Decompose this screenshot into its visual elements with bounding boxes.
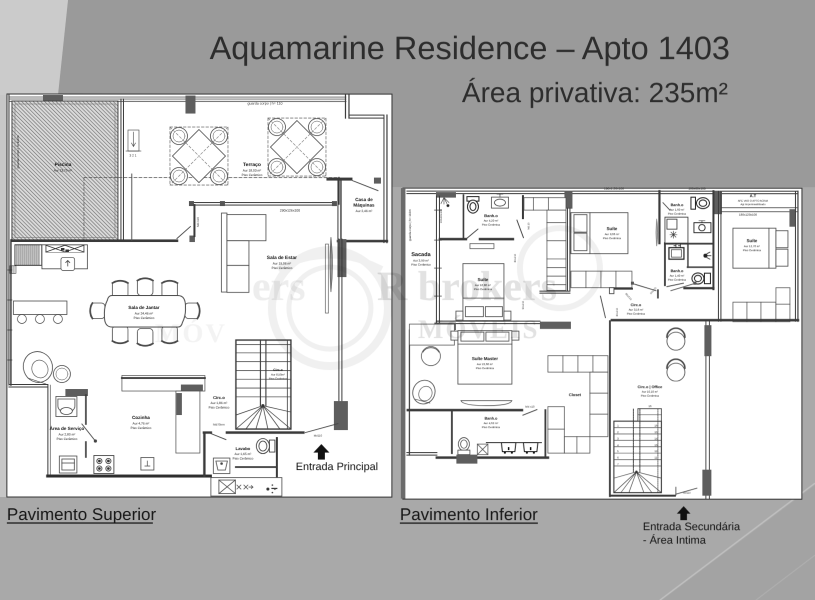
svg-text:Máquinas: Máquinas [353, 203, 375, 208]
svg-text:Piso Cerâmico: Piso Cerâmico [131, 426, 152, 430]
svg-text:Md.110: Md.110 [196, 217, 200, 227]
svg-text:12: 12 [654, 449, 658, 453]
svg-text:Piso Cerâmica: Piso Cerâmica [743, 248, 762, 252]
svg-text:Piso Cerâmica: Piso Cerâmica [603, 236, 622, 240]
svg-text:3 2 1: 3 2 1 [129, 154, 136, 158]
svg-text:16: 16 [648, 404, 652, 408]
svg-text:290x126x100: 290x126x100 [280, 209, 300, 213]
svg-text:14: 14 [654, 437, 658, 441]
svg-text:Suíte: Suíte [607, 226, 618, 231]
svg-text:Circ.o: Circ.o [273, 368, 283, 372]
svg-text:Piscina: Piscina [55, 162, 72, 168]
svg-text:Banh.o: Banh.o [484, 417, 498, 421]
svg-text:Aur 4,76 m²: Aur 4,76 m² [133, 422, 150, 426]
svg-text:ers: ers [252, 264, 306, 310]
svg-text:Pavimento Superior: Pavimento Superior [7, 505, 157, 524]
svg-text:Suíte: Suíte [747, 238, 758, 243]
svg-text:16: 16 [654, 424, 658, 428]
svg-text:180x120x100: 180x120x100 [739, 213, 757, 217]
svg-text:Circ.o: Circ.o [631, 303, 642, 307]
svg-text:R brokers: R brokers [377, 264, 557, 310]
svg-text:Aur 2,46 m²: Aur 2,46 m² [356, 209, 373, 213]
svg-text:- Área Intima: - Área Intima [643, 534, 707, 547]
svg-text:190x1.20x100: 190x1.20x100 [604, 187, 624, 191]
svg-text:MÓVEIS: MÓVEIS [418, 314, 540, 344]
svg-text:13: 13 [654, 443, 658, 447]
svg-text:Piso Cerâmico: Piso Cerâmico [233, 457, 254, 461]
svg-text:80x210: 80x210 [514, 253, 517, 262]
svg-text:Entrada Secundária: Entrada Secundária [643, 521, 741, 533]
svg-text:Piso Cerâmica: Piso Cerâmica [476, 366, 495, 370]
svg-text:Aur 24,46 m²: Aur 24,46 m² [135, 312, 153, 316]
svg-text:Aquamarine Residence – Apto 14: Aquamarine Residence – Apto 1403 [210, 30, 730, 66]
svg-text:Casa de: Casa de [355, 197, 373, 202]
svg-text:Piso Cerâmico: Piso Cerâmico [209, 406, 230, 410]
svg-text:Aur 13,70 m²: Aur 13,70 m² [54, 169, 72, 173]
svg-text:100x60x100: 100x60x100 [440, 208, 443, 223]
svg-text:Banh.o: Banh.o [484, 213, 498, 218]
svg-text:11: 11 [654, 456, 657, 460]
svg-text:Md.10: Md.10 [527, 222, 530, 230]
svg-text:Md110: Md110 [314, 434, 323, 438]
svg-text:Pavimento Inferior: Pavimento Inferior [400, 505, 538, 524]
svg-text:guarda corpo | h= 110m: guarda corpo | h= 110m [408, 209, 412, 241]
svg-text:Cozinha: Cozinha [132, 415, 150, 420]
svg-text:Piso Cerâmico: Piso Cerâmico [134, 316, 155, 320]
svg-text:A.T: A.T [750, 193, 757, 198]
svg-text:Circ.o | Office: Circ.o | Office [638, 385, 663, 389]
svg-text:Piso Cerâmica: Piso Cerâmica [641, 394, 660, 398]
svg-text:100x60x100: 100x60x100 [688, 187, 706, 191]
svg-text:Aur 18,03 m²: Aur 18,03 m² [243, 169, 261, 173]
svg-text:Aur 2,80 m²: Aur 2,80 m² [59, 433, 76, 437]
svg-text:Circ.o: Circ.o [213, 395, 225, 400]
svg-text:Piso Cerâmico: Piso Cerâmico [57, 437, 78, 441]
svg-text:Closet: Closet [569, 392, 582, 397]
svg-text:Lavabo: Lavabo [236, 446, 251, 451]
svg-text:Área de Serviço: Área de Serviço [50, 425, 85, 431]
svg-text:Md110: Md110 [683, 492, 691, 495]
svg-text:Piso Cerâmica: Piso Cerâmica [668, 278, 687, 282]
svg-text:Piso Cerâmico: Piso Cerâmico [242, 173, 263, 177]
svg-text:Entrada Principal: Entrada Principal [296, 461, 378, 473]
svg-text:Piso Cerâmica: Piso Cerâmica [627, 312, 646, 316]
svg-text:Agt Impermeabilizado: Agt Impermeabilizado [740, 203, 766, 206]
svg-text:guarda corpo | h= 110: guarda corpo | h= 110 [248, 102, 283, 106]
svg-text:Área privativa: 235m²: Área privativa: 235m² [462, 77, 728, 108]
svg-text:Md70em: Md70em [213, 423, 225, 427]
svg-text:Suíte Master: Suíte Master [472, 356, 498, 361]
svg-text:Sala de Jantar: Sala de Jantar [128, 305, 159, 310]
svg-text:MÓV: MÓV [155, 318, 227, 348]
svg-text:Piso Cerâmica: Piso Cerâmica [482, 425, 501, 429]
svg-text:Aur 1,65 m²: Aur 1,65 m² [235, 452, 252, 456]
svg-text:15: 15 [654, 430, 658, 434]
svg-text:Banh.o: Banh.o [670, 269, 684, 273]
svg-text:Piso Cerâmica: Piso Cerâmica [668, 212, 687, 216]
svg-text:Terraço: Terraço [243, 162, 261, 168]
svg-text:Banh.o: Banh.o [671, 203, 685, 207]
svg-text:80x210: 80x210 [616, 307, 619, 316]
svg-text:Aur 1,86 m²: Aur 1,86 m² [211, 401, 228, 405]
svg-text:Md x10: Md x10 [525, 405, 535, 409]
svg-text:Piso Cerâmico: Piso Cerâmico [269, 377, 288, 381]
svg-text:guarda corpo | h=110m: guarda corpo | h=110m [16, 135, 20, 168]
svg-text:Piso Cerâmica: Piso Cerâmica [482, 223, 501, 227]
svg-text:Sacada: Sacada [411, 252, 431, 258]
